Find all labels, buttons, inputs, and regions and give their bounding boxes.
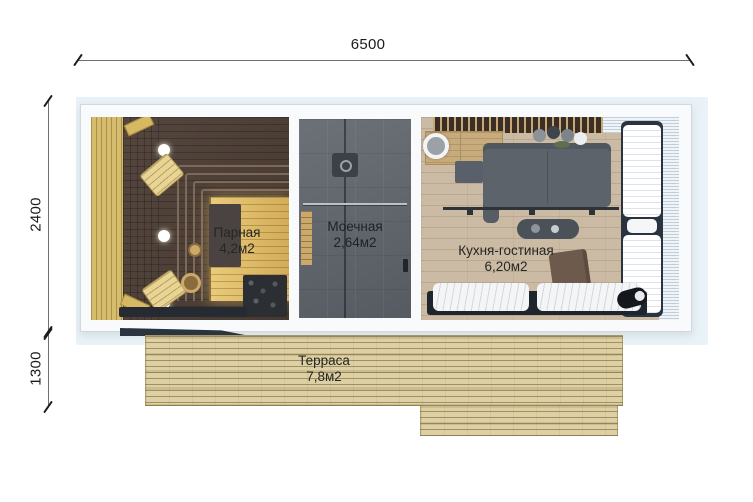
track-light [443, 207, 619, 210]
dimension-house-depth-label: 2400 [28, 185, 45, 245]
room-area: 4,2м2 [167, 241, 289, 257]
sink-icon [423, 133, 449, 159]
curtain-top [623, 125, 661, 217]
washroom-label: Моечная 2,64м2 [299, 219, 411, 251]
floor-plan-canvas: 6500 2400 1300 [0, 0, 753, 502]
sauna-wood-wall [91, 117, 123, 320]
terrace-deck: Терраса 7,8м2 [145, 335, 623, 406]
room-kitchen-living: Кухня-гостиная 6,20м2 [421, 117, 679, 320]
terrace-label: Терраса 7,8м2 [244, 353, 404, 385]
sofa [483, 143, 611, 207]
plant [554, 141, 570, 148]
room-area: 7,8м2 [244, 369, 404, 385]
room-washroom: Моечная 2,64м2 [299, 119, 411, 318]
coffee-table [517, 219, 579, 239]
floor-mat [119, 307, 247, 317]
steam-room-label: Парная 4,2м2 [167, 225, 289, 257]
building-outline: Парная 4,2м2 Моечная 2,64м2 [80, 104, 692, 332]
glass-partition [303, 203, 407, 205]
terrace-lower-step [420, 405, 618, 436]
room-name: Моечная [299, 219, 411, 235]
kitchen-living-label: Кухня-гостиная 6,20м2 [421, 243, 591, 275]
bar-stool [533, 129, 546, 142]
room-area: 6,20м2 [421, 259, 591, 275]
room-area: 2,64м2 [299, 235, 411, 251]
room-steam: Парная 4,2м2 [91, 117, 289, 320]
mattress [433, 283, 529, 311]
door-handle [403, 259, 408, 272]
pillow [627, 219, 657, 233]
dimension-terrace-depth-line [48, 334, 49, 407]
dimension-width-line [78, 60, 690, 61]
sauna-bucket [181, 273, 201, 293]
room-name: Парная [167, 225, 289, 241]
bar-stool [547, 126, 560, 139]
dimension-house-depth-line [48, 101, 49, 332]
cooktop [455, 161, 483, 183]
room-name: Терраса [244, 353, 404, 369]
sauna-stove [243, 275, 287, 317]
shower-head-icon [332, 153, 358, 177]
dimension-width-label: 6500 [278, 36, 458, 53]
room-name: Кухня-гостиная [421, 243, 591, 259]
dimension-terrace-depth-label: 1300 [28, 339, 45, 399]
bar-stool [574, 132, 587, 145]
